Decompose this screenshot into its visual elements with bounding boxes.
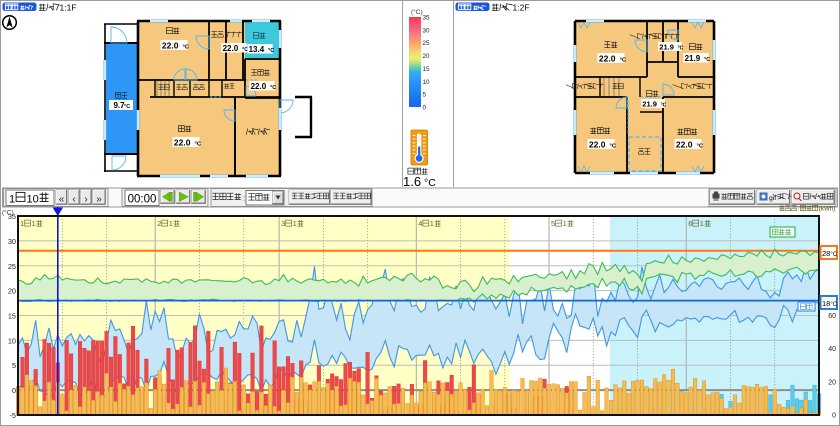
svg-text:-5: -5 bbox=[10, 411, 17, 420]
svg-text:22.0: 22.0 bbox=[676, 140, 693, 150]
svg-text:°C: °C bbox=[270, 85, 276, 91]
svg-text:5: 5 bbox=[12, 361, 16, 370]
svg-text:5: 5 bbox=[423, 92, 427, 99]
svg-text:°C: °C bbox=[831, 302, 838, 308]
svg-text:0: 0 bbox=[423, 105, 427, 112]
svg-text:1: 1 bbox=[293, 219, 297, 228]
svg-text:20: 20 bbox=[423, 53, 431, 60]
svg-text:22.0: 22.0 bbox=[162, 41, 179, 51]
svg-text:35: 35 bbox=[423, 15, 431, 22]
svg-text:°C: °C bbox=[678, 46, 684, 52]
svg-text:1: 1 bbox=[430, 219, 434, 228]
svg-text:22.0: 22.0 bbox=[174, 138, 191, 148]
svg-text:°C: °C bbox=[661, 103, 667, 109]
svg-text:35: 35 bbox=[8, 212, 16, 221]
svg-text:0: 0 bbox=[832, 413, 836, 420]
svg-text:›: › bbox=[84, 194, 87, 205]
svg-text:°C: °C bbox=[704, 57, 710, 63]
svg-text:1: 1 bbox=[9, 193, 15, 205]
svg-text:22.0: 22.0 bbox=[223, 44, 239, 53]
svg-text:22.0: 22.0 bbox=[599, 54, 616, 64]
svg-text:·: · bbox=[798, 205, 800, 212]
svg-text:22.0: 22.0 bbox=[251, 82, 267, 91]
svg-text:°C: °C bbox=[620, 58, 626, 64]
svg-text:28: 28 bbox=[822, 249, 830, 258]
svg-text:21.9: 21.9 bbox=[659, 43, 674, 52]
svg-text:°C: °C bbox=[610, 144, 616, 150]
svg-text:1.6: 1.6 bbox=[403, 174, 421, 189]
svg-text:10: 10 bbox=[8, 336, 16, 345]
svg-text:(°C): (°C) bbox=[411, 8, 423, 16]
svg-text:4: 4 bbox=[418, 219, 422, 228]
svg-text:15: 15 bbox=[423, 66, 431, 73]
svg-text:15: 15 bbox=[8, 312, 16, 321]
svg-text:1: 1 bbox=[20, 219, 24, 228]
svg-text:13.4: 13.4 bbox=[249, 45, 265, 54]
svg-text:25: 25 bbox=[423, 40, 431, 47]
svg-text:30: 30 bbox=[423, 27, 431, 34]
svg-text:«: « bbox=[59, 194, 65, 205]
svg-text:22.0: 22.0 bbox=[589, 140, 606, 150]
svg-text:1: 1 bbox=[32, 219, 36, 228]
svg-text:gif: gif bbox=[769, 195, 776, 202]
svg-text:‹: ‹ bbox=[72, 194, 75, 205]
svg-text:30: 30 bbox=[8, 237, 16, 246]
svg-text:21.9: 21.9 bbox=[685, 54, 701, 63]
svg-text:1:1F: 1:1F bbox=[60, 2, 77, 12]
svg-text:°C: °C bbox=[195, 142, 201, 148]
svg-text:25: 25 bbox=[8, 262, 16, 271]
svg-text:1: 1 bbox=[563, 219, 567, 228]
svg-text:6: 6 bbox=[688, 219, 692, 228]
svg-text:2: 2 bbox=[157, 219, 161, 228]
svg-text::: : bbox=[243, 194, 245, 203]
svg-text:°C: °C bbox=[424, 177, 436, 189]
svg-text:1:2F: 1:2F bbox=[513, 2, 530, 12]
svg-text:0: 0 bbox=[12, 386, 16, 395]
svg-text:18: 18 bbox=[822, 299, 830, 308]
svg-text:10: 10 bbox=[27, 193, 39, 205]
svg-text:(kWh): (kWh) bbox=[819, 205, 836, 212]
svg-text:40: 40 bbox=[828, 346, 836, 353]
svg-text:1: 1 bbox=[700, 219, 704, 228]
svg-text:10: 10 bbox=[423, 79, 431, 86]
svg-text:°C: °C bbox=[697, 144, 703, 150]
svg-text:00:00: 00:00 bbox=[128, 194, 157, 206]
svg-text:60: 60 bbox=[828, 313, 836, 320]
svg-text:°C: °C bbox=[183, 45, 189, 51]
svg-text:20: 20 bbox=[828, 379, 836, 386]
svg-text:»: » bbox=[96, 194, 102, 205]
svg-text:1: 1 bbox=[169, 219, 173, 228]
svg-text:°C: °C bbox=[831, 252, 838, 258]
svg-text:21.9: 21.9 bbox=[642, 100, 657, 109]
svg-text:°C: °C bbox=[268, 48, 274, 54]
svg-text:20: 20 bbox=[8, 287, 16, 296]
svg-text:5: 5 bbox=[551, 219, 555, 228]
svg-text:°C: °C bbox=[124, 104, 130, 110]
svg-text:3: 3 bbox=[281, 219, 285, 228]
